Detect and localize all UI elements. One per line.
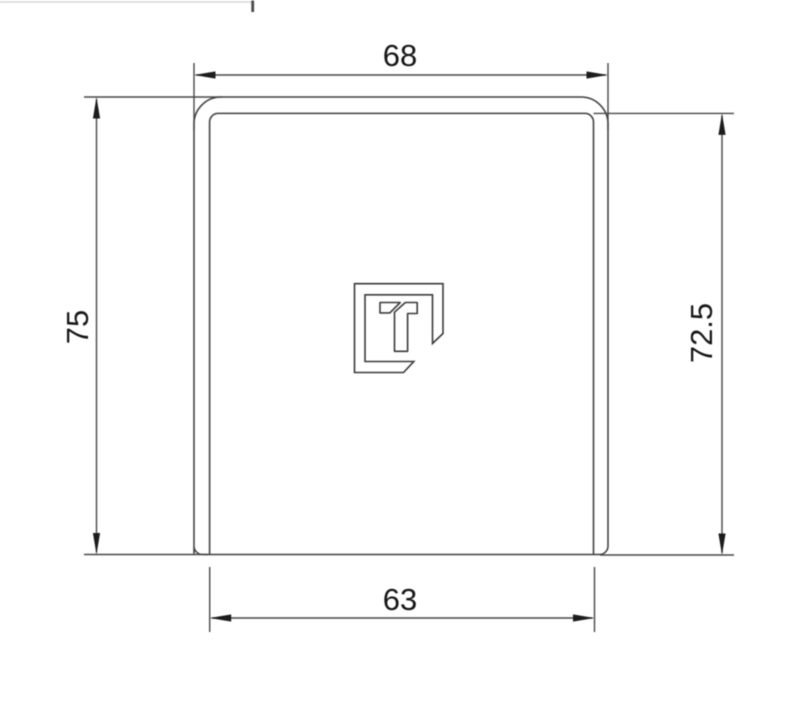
svg-text:68: 68: [383, 38, 417, 73]
svg-text:75: 75: [60, 310, 95, 344]
svg-text:72.5: 72.5: [684, 303, 719, 363]
svg-text:63: 63: [383, 582, 417, 617]
